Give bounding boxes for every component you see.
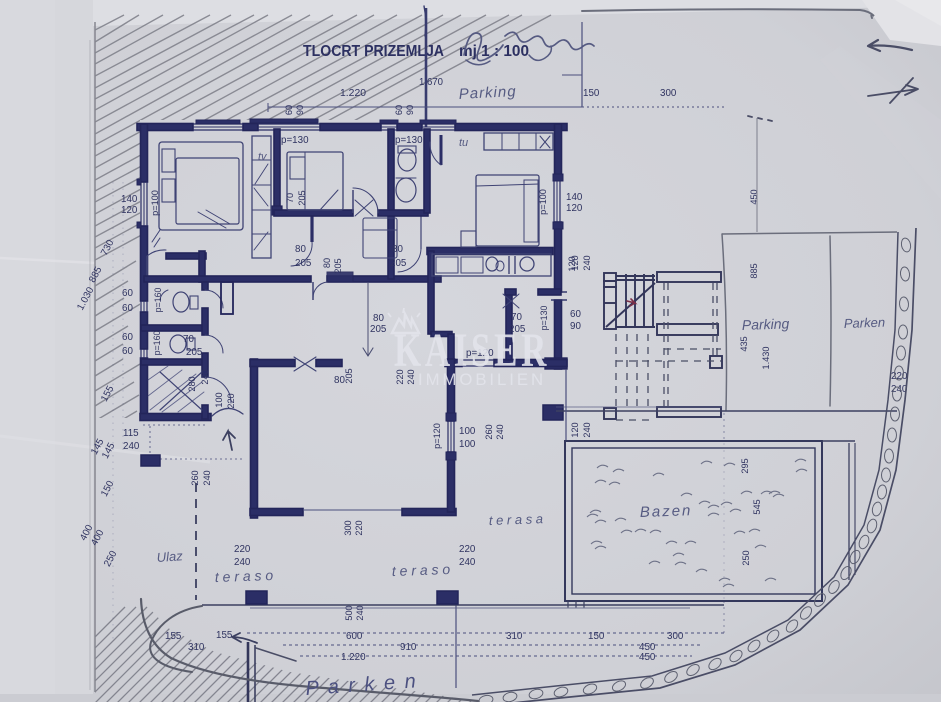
svg-text:240: 240 [200, 369, 210, 384]
svg-text:p=100: p=100 [150, 190, 160, 216]
svg-text:p=130: p=130 [395, 135, 423, 146]
svg-text:300: 300 [660, 88, 677, 99]
svg-text:240: 240 [123, 441, 140, 452]
svg-text:205: 205 [344, 368, 354, 383]
svg-text:260: 260 [484, 424, 494, 439]
svg-text:60: 60 [122, 346, 133, 357]
svg-text:205: 205 [370, 324, 387, 335]
svg-text:205: 205 [390, 258, 407, 269]
svg-text:240: 240 [495, 424, 505, 439]
svg-text:t e r a s o: t e r a s o [392, 561, 451, 579]
svg-text:220: 220 [459, 544, 476, 555]
svg-text:70: 70 [285, 193, 295, 203]
svg-text:295: 295 [740, 458, 750, 473]
svg-text:205: 205 [186, 347, 203, 358]
svg-text:Parking: Parking [742, 315, 790, 333]
svg-text:p=160: p=160 [153, 288, 163, 313]
svg-text:60: 60 [284, 105, 294, 115]
svg-text:155: 155 [216, 630, 233, 641]
svg-text:p=130: p=130 [281, 135, 309, 146]
svg-text:Parking: Parking [458, 83, 517, 103]
svg-text:TLOCRT PRIZEMLJA: TLOCRT PRIZEMLJA [303, 43, 444, 60]
svg-text:p=120: p=120 [432, 423, 442, 449]
svg-text:120: 120 [570, 255, 580, 270]
svg-text:545: 545 [752, 499, 762, 514]
svg-text:Bazen: Bazen [640, 502, 693, 521]
svg-text:310: 310 [188, 642, 205, 653]
svg-text:910: 910 [400, 642, 417, 653]
svg-text:120: 120 [570, 422, 580, 437]
svg-text:1.220: 1.220 [341, 652, 366, 663]
svg-text:1.430: 1.430 [761, 347, 771, 370]
svg-text:240: 240 [234, 557, 251, 568]
svg-text:60: 60 [122, 303, 133, 314]
svg-text:240: 240 [202, 470, 212, 485]
svg-text:mj 1 : 100: mj 1 : 100 [459, 43, 529, 60]
svg-text:100: 100 [459, 439, 476, 450]
svg-text:205: 205 [333, 258, 343, 273]
svg-text:120: 120 [121, 205, 138, 216]
svg-text:155: 155 [165, 631, 182, 642]
svg-text:100: 100 [214, 392, 224, 407]
svg-text:60: 60 [122, 288, 133, 299]
svg-text:80: 80 [295, 244, 306, 255]
svg-text:t e r a s a: t e r a s a [489, 511, 544, 528]
svg-text:80: 80 [392, 244, 403, 255]
svg-text:Ulaz: Ulaz [156, 548, 183, 565]
svg-text:435: 435 [739, 336, 749, 351]
svg-text:450: 450 [639, 652, 656, 663]
svg-text:60: 60 [570, 309, 581, 320]
svg-text:tu: tu [459, 137, 468, 149]
svg-text:t e r a s o: t e r a s o [215, 567, 274, 585]
svg-text:310: 310 [506, 631, 523, 642]
svg-text:300: 300 [343, 520, 353, 535]
svg-text:220: 220 [234, 544, 251, 555]
svg-text:150: 150 [583, 88, 600, 99]
svg-text:90: 90 [570, 321, 581, 332]
svg-text:260: 260 [190, 470, 200, 485]
svg-text:600: 600 [346, 631, 363, 642]
svg-text:1.220: 1.220 [340, 88, 366, 99]
svg-text:70: 70 [511, 312, 522, 323]
svg-text:220: 220 [226, 393, 236, 408]
svg-text:240: 240 [582, 255, 592, 270]
svg-text:140: 140 [566, 192, 583, 203]
svg-text:Parken: Parken [844, 315, 886, 331]
svg-text:100: 100 [459, 426, 476, 437]
svg-text:115: 115 [123, 428, 139, 439]
svg-text:60: 60 [122, 332, 133, 343]
svg-text:60: 60 [394, 105, 404, 115]
svg-text:250: 250 [741, 550, 751, 565]
svg-text:80: 80 [322, 258, 332, 268]
svg-text:70: 70 [183, 334, 194, 345]
svg-text:tv: tv [258, 151, 268, 163]
svg-text:885: 885 [749, 263, 759, 278]
svg-text:240: 240 [459, 557, 476, 568]
svg-text:p=160: p=160 [152, 331, 162, 356]
svg-text:140: 140 [121, 194, 138, 205]
svg-text:240: 240 [582, 422, 592, 437]
svg-text:80: 80 [373, 313, 384, 324]
svg-text:205: 205 [297, 190, 307, 205]
svg-text:205: 205 [295, 258, 312, 269]
svg-text:280: 280 [187, 376, 197, 391]
svg-text:IMMOBILIEN: IMMOBILIEN [418, 370, 546, 389]
svg-text:120: 120 [566, 203, 583, 214]
svg-text:90: 90 [295, 105, 305, 115]
svg-text:p=100: p=100 [538, 189, 548, 215]
svg-text:90: 90 [405, 105, 415, 115]
svg-text:220: 220 [354, 520, 364, 535]
svg-text:1.670: 1.670 [419, 77, 443, 88]
